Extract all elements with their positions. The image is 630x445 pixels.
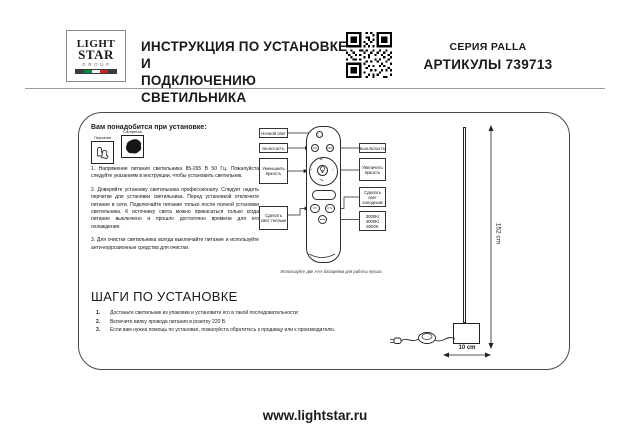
step-number: 2.	[96, 319, 110, 325]
callout-turn-on: ВКЛЮЧИТЬ	[259, 143, 288, 153]
bulb-icon	[319, 166, 326, 174]
lamp-base	[453, 323, 480, 344]
tools-title: Вам понадобится при установке:	[91, 124, 207, 131]
height-dimension-label: 152 cm	[493, 217, 502, 251]
header-divider	[25, 88, 605, 89]
dpad-right-arrow-icon: ›	[332, 168, 334, 172]
articles-label: АРТИКУЛЫ 739713	[418, 57, 558, 72]
step-text: Достаньте светильник из упаковки и устан…	[110, 310, 299, 316]
page-title: ИНСТРУКЦИЯ ПО УСТАНОВКЕ И ПОДКЛЮЧЕНИЮ СВ…	[141, 38, 356, 106]
italian-flag-bar	[75, 69, 117, 74]
steps-list: 1. Достаньте светильник из упаковки и ус…	[96, 310, 386, 336]
qr-code	[346, 32, 392, 78]
width-dimension-line	[443, 351, 491, 359]
step-text: Если вам нужна помощь по установке, пожа…	[110, 327, 335, 333]
series-block: СЕРИЯ PALLA АРТИКУЛЫ 739713	[418, 41, 558, 72]
callout-increase-brightness: Увеличить яркость	[359, 158, 386, 181]
tool-gloves: Перчатки	[91, 135, 114, 164]
step-row: 3. Если вам нужна помощь по установке, п…	[96, 327, 386, 333]
step-number: 1.	[96, 310, 110, 316]
series-label: СЕРИЯ PALLA	[418, 41, 558, 53]
light-button	[317, 165, 328, 176]
step-row: 2. Включите вилку провода питания в розе…	[96, 319, 386, 325]
remote-caption: Используйте две ААА батарейки для работы…	[256, 269, 406, 274]
remote-bottom-arc	[307, 253, 337, 261]
title-line-2: ПОДКЛЮЧЕНИЮ СВЕТИЛЬНИКА	[141, 72, 356, 106]
tool-label: Салфетка	[122, 129, 143, 134]
step-row: 1. Достаньте светильник из упаковки и ус…	[96, 310, 386, 316]
lamp-rod	[463, 127, 466, 323]
safety-paragraphs: 1. Напряжение питания светильника 85-265…	[91, 166, 259, 258]
logo-word: GROUP	[82, 62, 112, 67]
callout-cold-light: Сделать свет холодным	[359, 187, 386, 207]
step-text: Включите вилку провода питания в розетку…	[110, 319, 227, 325]
night-light-button: ☾	[316, 131, 323, 138]
safety-paragraph-3: 3. Для очистки светильника всегда выключ…	[91, 237, 259, 252]
callout-night-light: Ночной свет	[259, 128, 288, 138]
steps-title: ШАГИ ПО УСТАНОВКЕ	[91, 289, 238, 304]
safety-paragraph-1: 1. Напряжение питания светильника 85-265…	[91, 166, 259, 181]
callout-decrease-brightness: Уменьшить яркость	[259, 158, 288, 184]
remote-diagram: ☾ ON OFF ↶ ↷ ‹ › CT- CT+ Ночной свет ВКЛ…	[256, 119, 406, 286]
pill-button	[312, 190, 336, 201]
step-number: 3.	[96, 327, 110, 333]
plug-icon	[394, 338, 401, 344]
dpad-down-arrow-icon: ↷	[320, 179, 324, 183]
logo-word: STAR	[78, 49, 114, 61]
ct-plus-button: CT+	[325, 204, 335, 214]
instruction-panel: Вам понадобится при установке: Перчатки …	[78, 112, 570, 370]
lightstar-logo: LIGHT STAR GROUP	[66, 30, 126, 82]
website-url: www.lightstar.ru	[0, 408, 630, 423]
title-line-1: ИНСТРУКЦИЯ ПО УСТАНОВКЕ И	[141, 38, 356, 72]
tools-list: Перчатки Салфетка	[91, 135, 144, 164]
callout-kelvin-modes: 3000K/ 4000K/ 6000K	[359, 211, 386, 231]
dpad-up-arrow-icon: ↶	[320, 158, 324, 162]
callout-warm-light: Сделать свет теплым	[259, 206, 288, 230]
cloth-icon: Салфетка	[121, 135, 144, 158]
tool-label: Перчатки	[94, 135, 111, 140]
instruction-sheet: LIGHT STAR GROUP ИНСТРУКЦИЯ ПО УСТАНОВКЕ…	[0, 0, 630, 445]
safety-paragraph-2: 2. Доверяйте установку светильника профе…	[91, 187, 259, 231]
gloves-icon	[91, 141, 114, 164]
power-cord	[389, 324, 457, 352]
tool-cloth: Салфетка	[121, 135, 144, 164]
ct-minus-button: CT-	[310, 204, 320, 214]
dpad-left-arrow-icon: ‹	[311, 168, 313, 172]
callout-turn-off: ВЫКЛЮЧИТЬ	[359, 143, 386, 153]
